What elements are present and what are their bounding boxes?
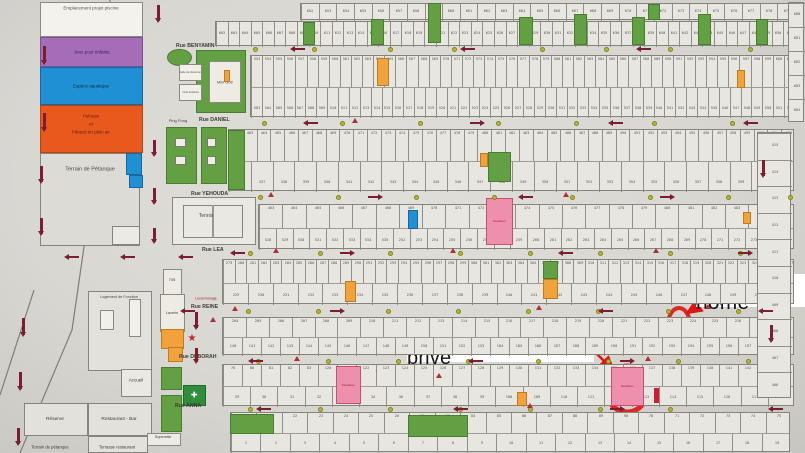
plot-number: 512 (352, 106, 359, 110)
plot-cell: 357 (686, 161, 708, 192)
plot-cell: 463 (259, 205, 282, 228)
plot-number: 557 (298, 57, 305, 61)
plot-cell: 481 (678, 205, 701, 228)
plot-cell: 207 (292, 318, 315, 337)
plot-cell: 506 (284, 87, 295, 118)
plot-number: 410 (772, 276, 779, 280)
plot-cell: 218 (543, 318, 566, 337)
plot-cell: 70 (638, 413, 663, 433)
plot-cell: 24 (333, 413, 358, 433)
map-label: 708 (169, 278, 176, 282)
plot-cell: 472 (367, 130, 381, 161)
plot-number: 304 (518, 261, 525, 265)
plot-number: 317 (670, 261, 677, 265)
plot-cell: 29 (223, 386, 250, 407)
facility-kids-club: Club Enfants (179, 84, 202, 101)
plot-cell: 470 (422, 205, 445, 228)
plot-number: 308 (565, 261, 572, 265)
plot-cell: 407 (758, 346, 792, 373)
plot-number: 272 (734, 238, 741, 242)
plot-number: 302 (495, 261, 502, 265)
plot-number: 248 (705, 293, 712, 297)
plot-number: 608 (288, 31, 295, 35)
plot-number: 230 (258, 293, 265, 297)
plot-number: 224 (689, 319, 696, 323)
plot-number: 527 (515, 106, 522, 110)
plot-number: 680 (794, 12, 801, 16)
plot-number: 634 (590, 31, 597, 35)
plot-number: 314 (635, 261, 642, 265)
plot-number: 412 (772, 223, 779, 227)
plot-number: 143 (287, 344, 294, 348)
plot-cell: 497 (712, 130, 726, 161)
plot-number: 138 (668, 366, 675, 370)
plot-cell: 300 (468, 260, 480, 283)
street-direction-arrow (455, 408, 468, 410)
plot-cell: 264 (594, 228, 611, 251)
plot-number: 489 (606, 131, 613, 135)
plot-cell: 111 (577, 386, 604, 407)
plot-number: 467 (302, 131, 309, 135)
plot-cell: 563 (362, 56, 373, 87)
plot-cell: 232 (298, 283, 323, 306)
plot-number: 624 (474, 31, 481, 35)
plot-cell: 528 (259, 228, 276, 251)
plot-cell: 570 (440, 56, 451, 87)
plot-cell: 245 (621, 283, 646, 306)
plot-cell: 581 (562, 56, 573, 87)
plot-number: 613 (346, 31, 353, 35)
plot-cell: 535 (599, 87, 610, 118)
plot-number: 123 (382, 366, 389, 370)
plot-number: 548 (743, 106, 750, 110)
water-point-dot (386, 309, 391, 314)
plot-cell: 654 (336, 4, 354, 21)
plot-number: 483 (734, 206, 741, 210)
plot-cell: 482 (702, 205, 725, 228)
plot-number: 555 (276, 57, 283, 61)
water-point-dot (570, 195, 575, 200)
plot-cell: 30 (250, 386, 277, 407)
facility-lawn-fitness-zone (40, 105, 143, 153)
plot-number: 122 (363, 366, 370, 370)
plot-number: 561 (343, 57, 350, 61)
plot-cell: 297 (433, 260, 445, 283)
water-point-dot (746, 359, 751, 364)
plot-cell: 527 (512, 87, 523, 118)
plot-cell: 646 (726, 22, 738, 47)
plot-number: 464 (261, 131, 268, 135)
plot-number: 672 (660, 9, 667, 13)
water-point-dot (666, 309, 671, 314)
plot-number: 109 (533, 395, 540, 399)
plot-cell: 292 (375, 260, 387, 283)
plot-number: 590 (665, 57, 672, 61)
facility-tennis-net (212, 205, 214, 238)
plot-number: 588 (642, 57, 649, 61)
plot-number: 542 (678, 106, 685, 110)
facility-label-text: Sanitaires (493, 220, 506, 223)
plot-number: 533 (580, 106, 587, 110)
plot-number: 563 (365, 57, 372, 61)
plot-number: 260 (533, 238, 540, 242)
plot-cell: 520 (436, 87, 447, 118)
plot-cell: 355 (643, 161, 665, 192)
plot-number: 11 (539, 441, 543, 445)
plot-number: 353 (607, 180, 614, 184)
plot-cell: 80 (242, 365, 261, 386)
plot-cell: 10 (496, 433, 525, 453)
plot-cell: 653 (319, 4, 337, 21)
plot-cell: 560 (329, 56, 340, 87)
plot-cell: 19 (762, 433, 791, 453)
plot-cell: 513 (360, 87, 371, 118)
plot-number: 294 (401, 261, 408, 265)
plot-number: 646 (729, 31, 736, 35)
plot-cell: 594 (706, 56, 717, 87)
plot-number: 652 (307, 9, 314, 13)
plot-cell: 16 (673, 433, 702, 453)
plot-cell: 531 (309, 228, 326, 251)
plot-cell: 87 (536, 413, 561, 433)
facility-reception (121, 369, 152, 397)
plot-cell: 37 (414, 386, 441, 407)
plot-cell: 5 (349, 433, 378, 453)
water-point-dot (526, 309, 531, 314)
plot-number: 472 (478, 206, 485, 210)
plot-cell: 612 (332, 22, 344, 47)
triangle-marker (268, 192, 274, 197)
plot-number: 472 (371, 131, 378, 135)
plot-number: 207 (300, 319, 307, 323)
plot-cell: 517 (403, 87, 414, 118)
plot-cell: 476 (562, 205, 585, 228)
plot-number: 406 (772, 383, 779, 387)
plot-cell: 252 (393, 228, 410, 251)
plot-number: 358 (716, 180, 723, 184)
plot-number: 482 (711, 206, 718, 210)
water-point-dot (318, 251, 323, 256)
street-direction-arrow (610, 122, 623, 124)
plot-cell: 483 (519, 130, 533, 161)
plot-number: 349 (520, 180, 527, 184)
plot-number: 661 (466, 9, 473, 13)
plot-cell: 408 (758, 319, 792, 346)
plot-number: 309 (576, 261, 583, 265)
plot-cell: 655 (354, 4, 372, 21)
triangle-marker (563, 192, 569, 197)
plot-cell: 110 (550, 386, 577, 407)
plot-cell: 666 (548, 4, 566, 21)
plot-cell: 359 (730, 161, 752, 192)
plot-cell: 569 (429, 56, 440, 87)
facility-blue-plot-1 (126, 153, 142, 175)
plot-cell: 479 (632, 205, 655, 228)
plot-cell: 255 (443, 228, 460, 251)
plot-cell: 39 (468, 386, 495, 407)
plot-number: 508 (308, 106, 315, 110)
plot-number: 12 (568, 441, 572, 445)
plot-number: 343 (389, 180, 396, 184)
plot-cell: 4 (319, 433, 348, 453)
plot-cell: 647 (737, 22, 749, 47)
plot-number: 513 (362, 106, 369, 110)
plot-cell: 573 (473, 56, 484, 87)
plot-cell: 140 (223, 337, 242, 356)
plot-number: 253 (415, 238, 422, 242)
plot-cell: 478 (609, 205, 632, 228)
plot-cell: 124 (395, 365, 414, 386)
plot-cell: 559 (318, 56, 329, 87)
plot-strip: 2021222324252627288485868788899070717273… (230, 412, 790, 452)
plot-number: 666 (554, 9, 561, 13)
street-direction-arrow (292, 48, 305, 50)
plot-number: 197 (745, 344, 752, 348)
facility-green-plot (408, 415, 468, 437)
plot-number: 351 (564, 180, 571, 184)
plot-number: 7 (422, 441, 424, 445)
street-direction-arrow (470, 360, 483, 362)
street-direction-arrow (340, 252, 353, 254)
plot-number: 465 (314, 206, 321, 210)
plot-cell: 532 (326, 228, 343, 251)
triangle-marker (273, 248, 279, 253)
plot-cell: 215 (475, 318, 498, 337)
facility-pingpong-table (175, 138, 186, 147)
plot-cell: 217 (520, 318, 543, 337)
plot-cell: 571 (451, 56, 462, 87)
plot-cell: 1 (231, 433, 260, 453)
plot-number: 667 (572, 9, 579, 13)
plot-cell: 283 (270, 260, 282, 283)
plot-number: 189 (592, 344, 599, 348)
facility-green-plot (303, 22, 315, 45)
plot-cell: 186 (528, 337, 547, 356)
plot-number: 18 (745, 441, 749, 445)
plot-cell: 244 (596, 283, 621, 306)
plot-cell: 639 (644, 22, 656, 47)
plot-cell: 684 (789, 99, 805, 123)
facility-green-plot (371, 19, 384, 45)
plot-number: 115 (697, 395, 704, 399)
plot-number: 684 (794, 108, 801, 112)
plot-cell: 294 (398, 260, 410, 283)
plot-cell: 468 (312, 130, 326, 161)
plot-cell: 223 (658, 318, 681, 337)
plot-cell: 146 (337, 337, 356, 356)
plot-number: 529 (537, 106, 544, 110)
plot-cell: 409 (758, 293, 792, 320)
plot-number: 598 (753, 57, 760, 61)
water-point-dot (318, 407, 323, 412)
plot-number: 622 (451, 31, 458, 35)
facility-green-plot (161, 395, 182, 432)
down-arrow (153, 188, 156, 203)
plot-cell: 127 (452, 365, 471, 386)
plot-cell: 188 (566, 337, 585, 356)
plot-number: 531 (315, 238, 322, 242)
facility-orange-plot (480, 153, 488, 167)
plot-cell: 249 (720, 283, 745, 306)
plot-number: 271 (717, 238, 724, 242)
plot-number: 108 (506, 395, 513, 399)
plot-number: 339 (302, 180, 309, 184)
plot-number: 673 (678, 9, 685, 13)
plot-cell: 246 (646, 283, 671, 306)
plot-number: 531 (558, 106, 565, 110)
plot-cell: 148 (376, 337, 395, 356)
plot-cell: 212 (406, 318, 429, 337)
map-label: et (89, 122, 93, 127)
water-point-dot (496, 121, 501, 126)
street-direction-arrow (620, 360, 633, 362)
water-point-dot (574, 121, 579, 126)
plot-number: 497 (716, 131, 723, 135)
plot-cell: 602 (216, 22, 228, 47)
plot-number: 654 (342, 9, 349, 13)
facility-orange-plot (517, 392, 527, 406)
plot-cell: 544 (697, 87, 708, 118)
plot-number: 593 (698, 57, 705, 61)
plot-cell: 586 (617, 56, 628, 87)
plot-number: 662 (483, 9, 490, 13)
street-direction-arrow (305, 122, 318, 124)
plot-number: 594 (709, 57, 716, 61)
plot-number: 209 (346, 319, 353, 323)
strip-midline (229, 161, 793, 162)
street-label: Rue ANNA (175, 403, 201, 409)
plot-cell: 661 (460, 4, 478, 21)
plot-number: 560 (331, 57, 338, 61)
street-direction-arrow (330, 310, 343, 312)
plot-number: 132 (554, 366, 561, 370)
plot-number: 116 (724, 395, 731, 399)
plot-cell: 531 (556, 87, 567, 118)
plot-number: 521 (450, 106, 457, 110)
plot-cell: 541 (664, 87, 675, 118)
plot-cell: 576 (506, 56, 517, 87)
plot-cell: 485 (547, 130, 561, 161)
plot-cell: 239 (472, 283, 497, 306)
facility-meeting-room: Salle de Réunion (179, 64, 202, 81)
plot-number: 149 (401, 344, 408, 348)
plot-number: 130 (516, 366, 523, 370)
plot-cell: 415 (758, 133, 792, 160)
plot-number: 279 (226, 261, 233, 265)
plot-number: 612 (335, 31, 342, 35)
plot-number: 126 (439, 366, 446, 370)
plot-cell: 496 (698, 130, 712, 161)
plot-cell: 131 (528, 365, 547, 386)
plot-cell: 539 (643, 87, 654, 118)
plot-number: 467 (361, 206, 368, 210)
plot-number: 5 (363, 441, 365, 445)
plot-cell: 642 (679, 22, 691, 47)
plot-number: 194 (687, 344, 694, 348)
plot-number: 4 (334, 441, 336, 445)
plot-cell: 545 (708, 87, 719, 118)
plot-number: 128 (478, 366, 485, 370)
plot-number: 323 (740, 261, 747, 265)
plot-number: 485 (551, 131, 558, 135)
plot-number: 192 (649, 344, 656, 348)
plot-number: 413 (772, 196, 779, 200)
plot-number: 263 (583, 238, 590, 242)
plot-number: 486 (564, 131, 571, 135)
plot-number: 9 (481, 441, 483, 445)
plot-cell: 298 (445, 260, 457, 283)
plot-number: 34 (371, 395, 375, 399)
plot-number: 270 (700, 238, 707, 242)
street-direction-arrow (745, 122, 758, 124)
plot-number: 357 (694, 180, 701, 184)
plot-number: 487 (578, 131, 585, 135)
plot-cell: 574 (484, 56, 495, 87)
plot-cell: 592 (684, 56, 695, 87)
plot-cell: 211 (383, 318, 406, 337)
plot-cell: 263 (577, 228, 594, 251)
plot-number: 322 (728, 261, 735, 265)
plot-number: 507 (297, 106, 304, 110)
facility-green-plot (574, 14, 587, 45)
plot-cell: 206 (269, 318, 292, 337)
plot-cell: 279 (223, 260, 235, 283)
plot-number: 312 (611, 261, 618, 265)
plot-cell: 237 (422, 283, 447, 306)
plot-cell: 293 (386, 260, 398, 283)
plot-cell: 680 (789, 3, 805, 27)
plot-cell: 413 (758, 186, 792, 213)
plot-cell: 611 (320, 22, 332, 47)
plot-number: 3 (304, 441, 306, 445)
street-label: Rue DANIEL (199, 117, 230, 123)
plot-number: 268 (667, 238, 674, 242)
plot-number: 237 (432, 293, 439, 297)
plot-cell: 505 (273, 87, 284, 118)
plot-cell: 281 (246, 260, 258, 283)
plot-number: 283 (273, 261, 280, 265)
plot-cell: 349 (512, 161, 534, 192)
plot-cell: 551 (773, 87, 784, 118)
cross-icon: ✚ (191, 391, 198, 400)
facility-label: Club Enfants (180, 85, 201, 100)
plot-cell: 507 (295, 87, 306, 118)
plot-number: 681 (794, 36, 801, 40)
plot-cell: 17 (703, 433, 732, 453)
plot-cell: 477 (436, 130, 450, 161)
plot-number: 617 (393, 31, 400, 35)
plot-number: 475 (548, 206, 555, 210)
plot-number: 184 (497, 344, 504, 348)
plot-number: 569 (431, 57, 438, 61)
plot-number: 541 (667, 106, 674, 110)
triangle-marker (436, 373, 442, 378)
water-point-dot (396, 359, 401, 364)
plot-number: 321 (716, 261, 723, 265)
plot-number: 342 (368, 180, 375, 184)
plot-number: 261 (549, 238, 556, 242)
plot-number: 140 (706, 366, 713, 370)
plot-number: 471 (454, 206, 461, 210)
plot-cell: 572 (462, 56, 473, 87)
plot-cell: 543 (686, 87, 697, 118)
street-direction-arrow (638, 48, 651, 50)
plot-cell: 356 (664, 161, 686, 192)
plot-cell: 314 (632, 260, 644, 283)
plot-number: 592 (687, 57, 694, 61)
plot-number: 245 (631, 293, 638, 297)
water-point-dot (736, 309, 741, 314)
